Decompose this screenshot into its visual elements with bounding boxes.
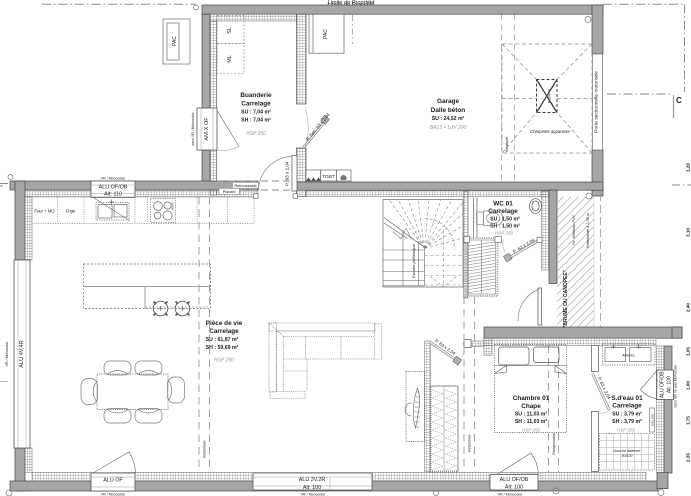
svg-text:SL: SL [227, 27, 233, 34]
svg-text:SU : 3,79 m²: SU : 3,79 m² [612, 412, 642, 418]
svg-text:Attentes: Attentes [621, 354, 635, 358]
svg-text:SH : 3,79 m²: SH : 3,79 m² [612, 419, 642, 425]
svg-text:ALU OF/OB: ALU OF/OB [660, 371, 666, 398]
svg-text:S.d'eau 01: S.d'eau 01 [611, 395, 643, 402]
svg-text:Buanderie: Buanderie [240, 92, 272, 99]
svg-text:Garage: Garage [437, 98, 459, 105]
svg-text:S/EL 500: S/EL 500 [651, 414, 655, 427]
svg-text:VR / Monocolor: VR / Monocolor [301, 492, 327, 496]
svg-text:VR / Monocolor: VR / Monocolor [5, 341, 9, 367]
svg-text:Escalier préfabriqué: Escalier préfabriqué [412, 244, 416, 278]
svg-text:P: 63 x 2,04: P: 63 x 2,04 [285, 161, 290, 186]
svg-text:VR / Monocolor: VR / Monocolor [101, 177, 127, 181]
svg-text:Pièce de vie: Pièce de vie [206, 320, 243, 327]
svg-text:Retroussable: Retroussable [234, 184, 256, 188]
svg-text:1,20: 1,20 [686, 163, 691, 172]
svg-text:Carrelage: Carrelage [488, 208, 518, 215]
svg-text:WC 01: WC 01 [493, 201, 513, 208]
svg-text:Frigo: Frigo [66, 209, 76, 214]
svg-text:1,05: 1,05 [686, 347, 691, 356]
svg-text:Douche italienne: Douche italienne [614, 449, 641, 453]
svg-text:HSP 250: HSP 250 [214, 358, 234, 364]
svg-text:SU : 11,03 m²: SU : 11,03 m² [515, 412, 548, 418]
svg-text:Retombée: Retombée [468, 434, 472, 452]
svg-text:VR / Monocolor: VR / Monocolor [498, 492, 524, 496]
svg-text:Platebande à 2,35 m: Platebande à 2,35 m [586, 213, 590, 248]
svg-text:SH : 7,04 m²: SH : 7,04 m² [241, 118, 271, 124]
svg-text:"BRUME OU CANOPEE": "BRUME OU CANOPEE" [563, 269, 569, 328]
svg-text:Rampissable: Rampissable [552, 433, 556, 455]
svg-text:Carrelage: Carrelage [209, 328, 239, 335]
svg-text:60/60: 60/60 [171, 202, 175, 210]
svg-text:Carrelage: Carrelage [612, 403, 642, 410]
svg-text:Chape: Chape [521, 403, 541, 410]
svg-text:Poutre VI: Poutre VI [548, 89, 552, 103]
svg-text:Fe. Matériau PVC: Fe. Matériau PVC [572, 215, 576, 245]
svg-text:HSP 250: HSP 250 [617, 428, 636, 433]
svg-text:Charpente apparente: Charpente apparente [530, 129, 570, 134]
svg-text:ALU 4V,4R: ALU 4V,4R [19, 340, 25, 367]
svg-text:SH : 11,03 m²: SH : 11,03 m² [515, 419, 548, 425]
svg-text:Rectitude: Rectitude [505, 137, 509, 152]
svg-text:BA13 + LdV 200: BA13 + LdV 200 [430, 125, 467, 131]
svg-text:SH : 59,69 m²: SH : 59,69 m² [206, 345, 239, 351]
svg-text:1,75: 1,75 [686, 416, 691, 425]
svg-text:SU : 24,52 m²: SU : 24,52 m² [432, 116, 465, 122]
svg-text:SU : 1,50 m²: SU : 1,50 m² [490, 217, 520, 223]
svg-text:Chambre 01: Chambre 01 [513, 395, 550, 402]
svg-text:ALU OF: ALU OF [103, 478, 123, 484]
svg-text:Placard: Placard [223, 190, 236, 194]
svg-text:Alt: 100: Alt: 100 [303, 485, 321, 491]
svg-text:2,40: 2,40 [686, 303, 691, 312]
svg-text:AM-X OF: AM-X OF [204, 117, 210, 141]
svg-text:PAC: PAC [323, 29, 329, 39]
svg-text:C: C [676, 96, 682, 105]
svg-text:VR / Monocolor: VR / Monocolor [101, 492, 127, 496]
svg-text:SU : 61,87 m²: SU : 61,87 m² [206, 337, 239, 343]
svg-text:HSP 250: HSP 250 [522, 428, 541, 433]
svg-text:sans VR ne pas Monocolor: sans VR ne pas Monocolor [674, 364, 678, 408]
svg-text:ALU 3V,2R: ALU 3V,2R [299, 477, 326, 483]
svg-text:3,10: 3,10 [686, 228, 691, 237]
svg-text:Four + MO: Four + MO [34, 209, 55, 214]
svg-text:ALU OF/OB: ALU OF/OB [99, 185, 128, 191]
svg-text:Retombée: Retombée [203, 440, 207, 458]
svg-text:Dalle béton: Dalle béton [431, 107, 466, 114]
svg-text:Alt: 100: Alt: 100 [505, 485, 523, 491]
svg-text:Porte sectionnelle motorisée: Porte sectionnelle motorisée [594, 71, 600, 133]
svg-text:SH : 1,50 m²: SH : 1,50 m² [490, 224, 520, 230]
svg-text:sans VR / Monocolor: sans VR / Monocolor [191, 112, 195, 146]
svg-text:HSP 250: HSP 250 [246, 131, 266, 137]
svg-text:Alt: 100: Alt: 100 [667, 376, 673, 393]
svg-text:2,35: 2,35 [686, 453, 691, 462]
svg-text:ML: ML [227, 55, 233, 63]
svg-text:ALU OF/OB: ALU OF/OB [500, 477, 529, 483]
svg-text:HSP 250: HSP 250 [495, 231, 514, 236]
svg-text:90/120: 90/120 [622, 454, 633, 458]
svg-text:1,00: 1,00 [686, 381, 691, 390]
svg-text:SU : 7,04 m²: SU : 7,04 m² [241, 110, 271, 116]
svg-text:PAC: PAC [172, 36, 178, 46]
svg-text:Limite de Propriété: Limite de Propriété [328, 0, 375, 6]
svg-text:Carrelage: Carrelage [241, 101, 271, 108]
svg-text:TGBT: TGBT [322, 174, 335, 180]
